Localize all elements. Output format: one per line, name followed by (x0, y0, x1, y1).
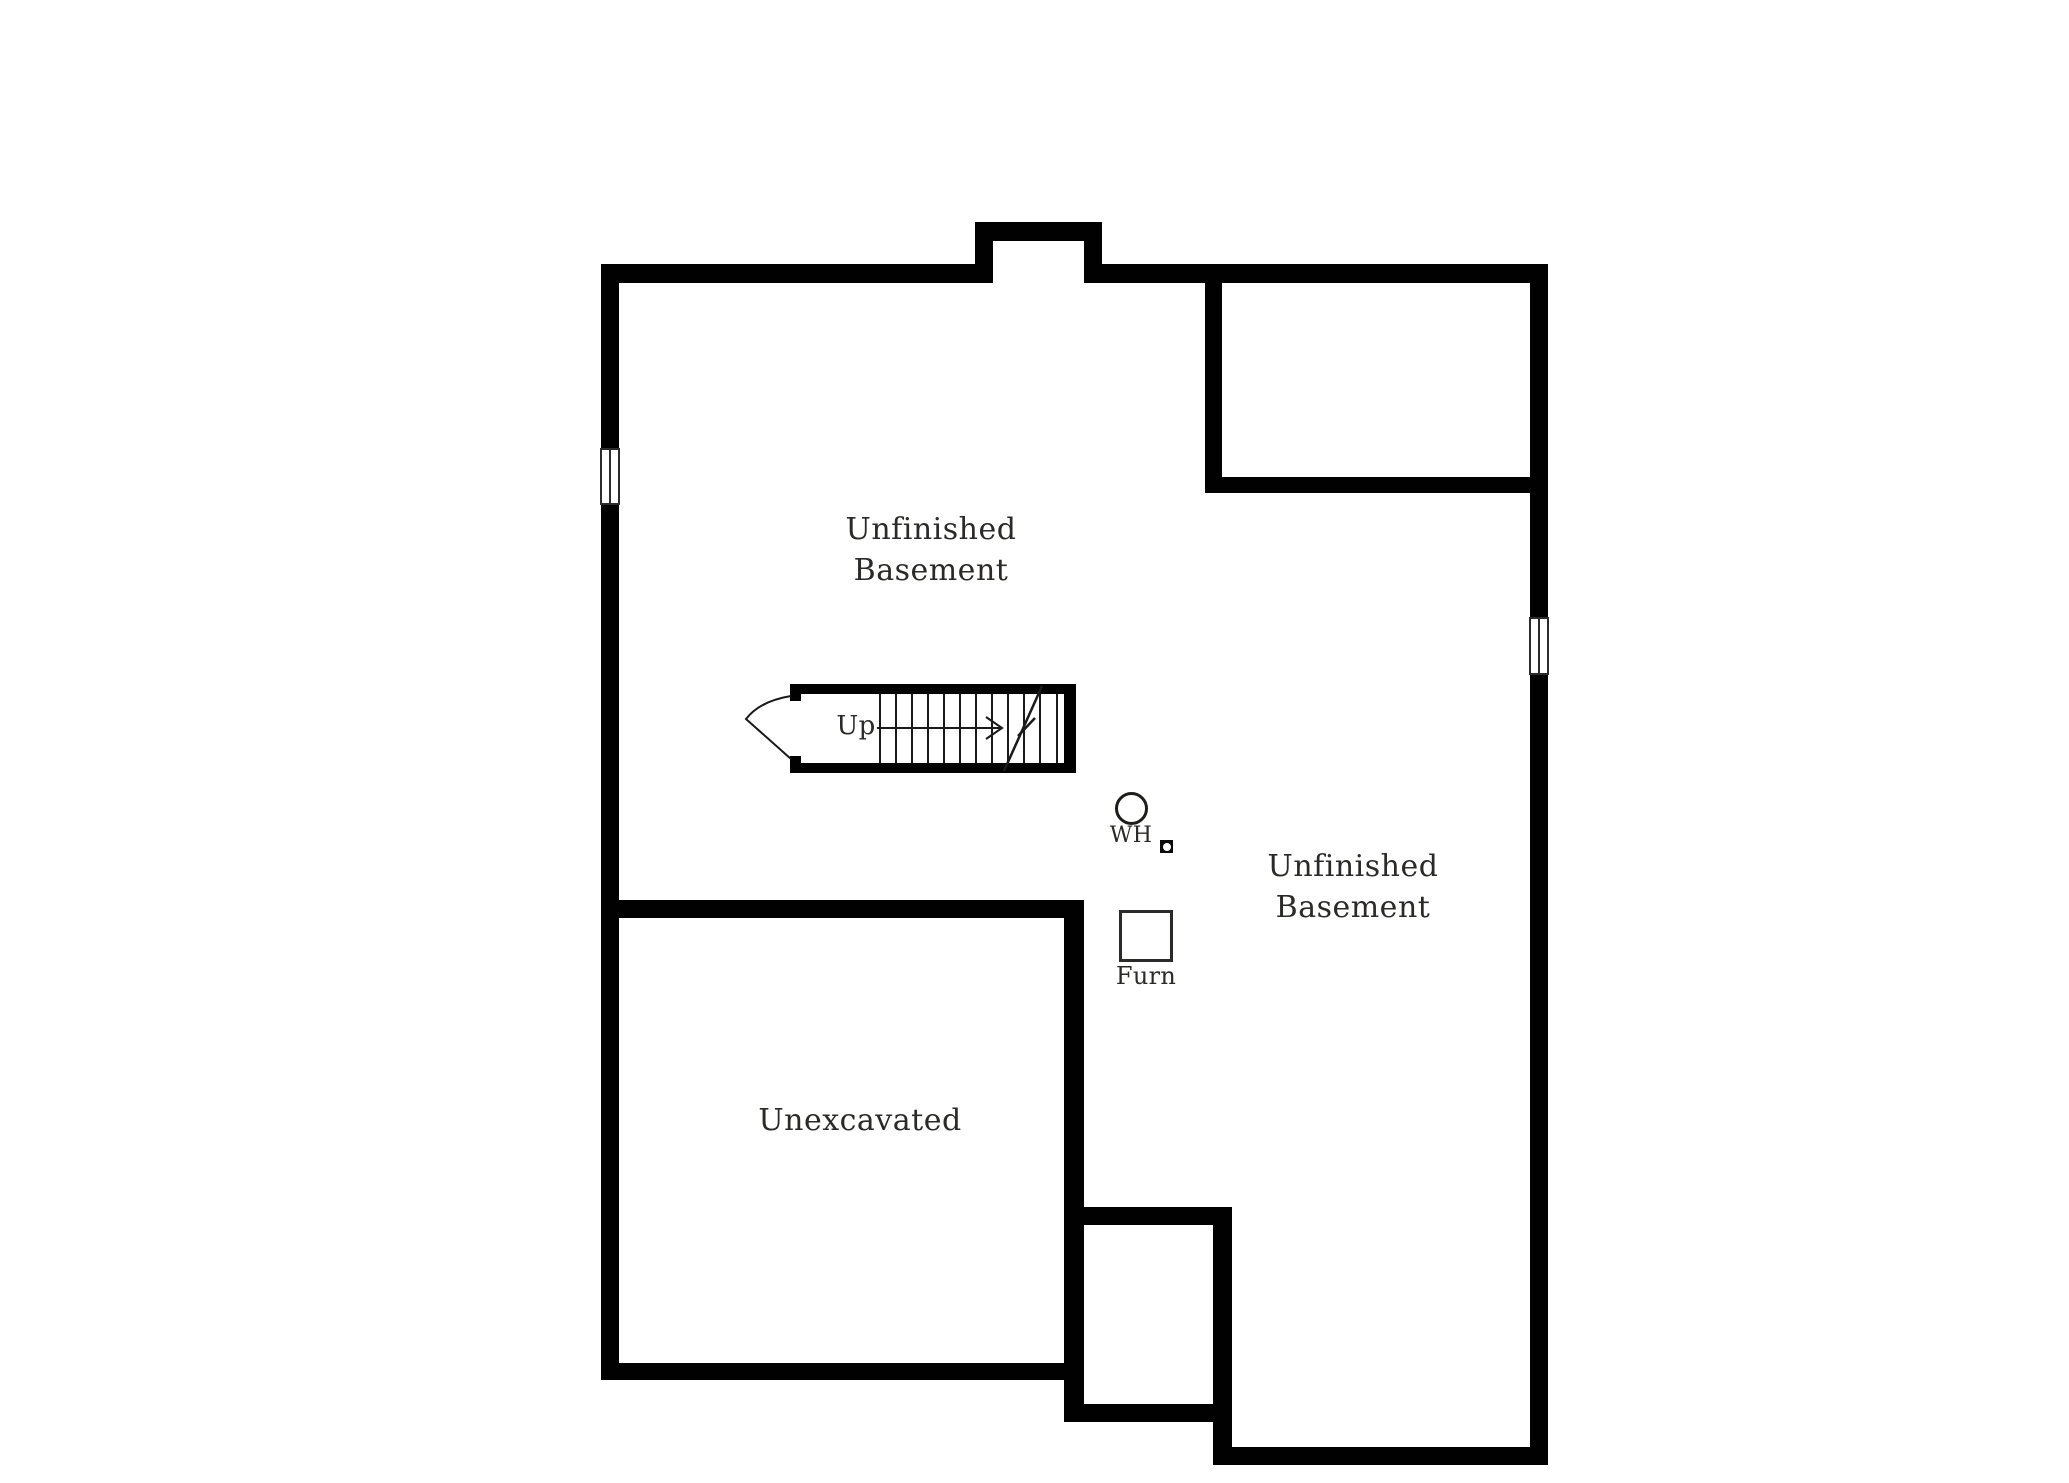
furnace-square-icon (1119, 910, 1173, 962)
floor-drain-hole (1163, 843, 1171, 851)
stair-direction-label: Up (833, 712, 879, 740)
stair-entry-swing (746, 696, 791, 759)
water-heater-circle-icon (1115, 792, 1148, 825)
floor-plan-canvas: Unfinished Basement Unfinished Basement … (0, 0, 2069, 1483)
room-label-unfinished-basement-left: Unfinished Basement (771, 509, 1091, 591)
room-label-unexcavated: Unexcavated (700, 1100, 1020, 1141)
room-label-line: Basement (1193, 887, 1513, 928)
room-label-line: Basement (771, 550, 1091, 591)
room-label-line: Unfinished (771, 509, 1091, 550)
water-heater-label: WH (1100, 824, 1162, 848)
stair-linework (0, 0, 2069, 1483)
furnace-label: Furn (1106, 963, 1186, 989)
room-label-line: Unfinished (1193, 846, 1513, 887)
room-label-unfinished-basement-right: Unfinished Basement (1193, 846, 1513, 928)
